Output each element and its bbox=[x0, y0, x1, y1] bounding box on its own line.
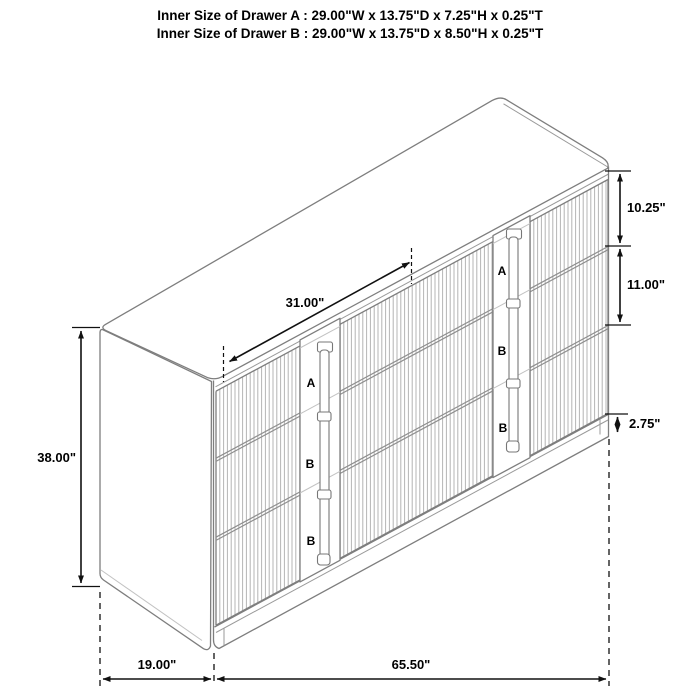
plinth-height-label: 2.75" bbox=[629, 416, 660, 431]
dresser-line-drawing: A B B A B B bbox=[0, 0, 700, 700]
right-stile-drawer-b1-label: B bbox=[498, 344, 507, 358]
drawer-b-height-label: 11.00" bbox=[627, 277, 665, 292]
left-stack-fluting bbox=[220, 348, 296, 623]
dimension-overall-height: 38.00" bbox=[37, 328, 100, 587]
right-stile-drawer-a-label: A bbox=[498, 264, 507, 278]
left-stile-drawer-b1-label: B bbox=[306, 457, 315, 471]
plinth-top-seam bbox=[215, 414, 609, 627]
right-handle-stile: A B B bbox=[493, 216, 530, 478]
left-drawer-stack bbox=[216, 346, 300, 625]
dimension-drawer-heights: 10.25" 11.00" bbox=[605, 171, 666, 325]
right-stile-drawer-b2-label: B bbox=[499, 421, 508, 435]
dimension-plinth-height: 2.75" bbox=[605, 414, 660, 432]
right-stack-fluting bbox=[534, 181, 606, 454]
furniture-dimension-diagram: Inner Size of Drawer A : 29.00"W x 13.75… bbox=[0, 0, 700, 700]
top-width-label: 31.00" bbox=[286, 295, 325, 310]
overall-height-label: 38.00" bbox=[37, 450, 76, 465]
cabinet-body: A B B A B B bbox=[100, 98, 609, 650]
left-stile-drawer-b2-label: B bbox=[307, 534, 316, 548]
overall-depth-label: 19.00" bbox=[138, 657, 177, 672]
left-stile-drawer-a-label: A bbox=[307, 376, 316, 390]
left-side-panel bbox=[100, 330, 212, 650]
drawer-a-height-label: 10.25" bbox=[627, 200, 666, 215]
overall-width-label: 65.50" bbox=[392, 657, 431, 672]
right-drawer-stack bbox=[530, 180, 608, 456]
left-handle-stile: A B B bbox=[300, 318, 340, 582]
